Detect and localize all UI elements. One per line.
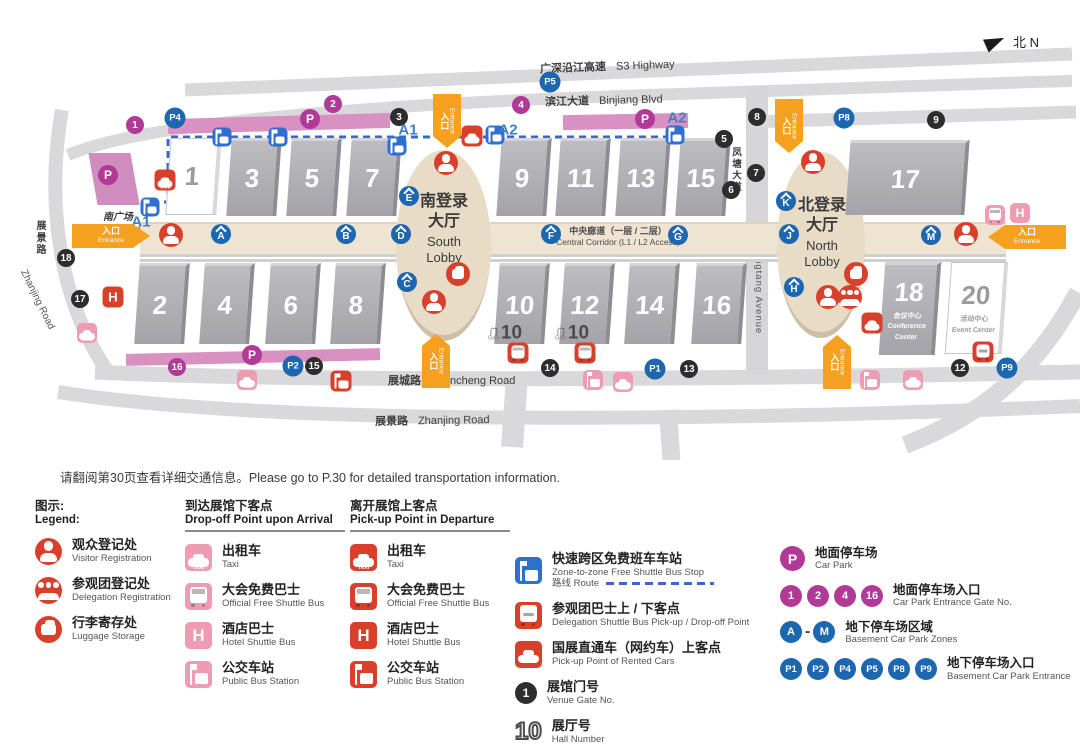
hall-13: 13 (615, 138, 670, 216)
venue-gate-8: 8 (748, 108, 766, 126)
venue-gate-badge: 1 (515, 682, 537, 704)
zonestop-icon (666, 126, 685, 145)
page: { "compass": {"label": "北 N"}, "roads": … (0, 0, 1080, 747)
legend-item-visitor: 观众登记处Visitor Registration (35, 538, 171, 565)
legend-item-text: 公交车站Public Bus Station (387, 661, 464, 687)
bus-icon (575, 343, 596, 364)
visitor-icon (159, 223, 183, 247)
hall-17: 17 (845, 140, 969, 215)
entrance-label: 入口Entrance (1014, 228, 1040, 245)
legend-panel: 请翻阅第30页查看详细交通信息。Please go to P.30 for de… (0, 460, 1080, 747)
taxi-icon: TAXI (77, 323, 97, 343)
taxi-icon: TAXI (185, 544, 212, 571)
visitor-icon (801, 150, 825, 174)
hall-number: 3 (244, 163, 261, 194)
basement-entrance-P9: P9 (997, 358, 1018, 379)
basement-zone-J: J (779, 224, 799, 244)
south-stub-road (512, 378, 517, 447)
bus-icon (985, 205, 1005, 225)
hall-number: 11 (566, 163, 596, 194)
zhanjing-road-bottom (58, 392, 1080, 418)
car-park-gate-16: 16 (168, 358, 186, 376)
visitor-icon (954, 222, 978, 246)
station-icon (331, 371, 352, 392)
car-park-gates-badge-4: 4 (834, 585, 856, 607)
visitor-icon (159, 223, 183, 247)
zhancheng-road-label: 展城路Zhancheng Road (388, 372, 515, 388)
hall-number: 20 (960, 280, 991, 311)
hall-3: 3 (226, 138, 281, 216)
visitor-icon (35, 538, 62, 565)
legend-item-basement-entrances: P1P2P4P5P8P9地下停车场入口Basement Car Park Ent… (780, 656, 1071, 682)
car-icon (862, 313, 883, 334)
dropoff-header: 到达展馆下客点 Drop-off Point upon Arrival (185, 495, 345, 532)
hotel-dropoff-icon: H (1010, 203, 1030, 223)
legend-col-dropoff: 到达展馆下客点 Drop-off Point upon Arrival TAXI… (185, 495, 345, 688)
legend-item-text: 大会免费巴士Official Free Shuttle Bus (222, 583, 324, 609)
corridor-road-lines (140, 254, 1006, 262)
bus-icon (185, 583, 212, 610)
basement-zone-M: M (921, 225, 941, 245)
legend-item-hotel: H酒店巴士Hotel Shuttle Bus (185, 622, 345, 649)
taxi-icon: TAXI (237, 370, 257, 390)
station-dropoff-icon (583, 370, 603, 390)
gate-number: 10 (568, 324, 589, 341)
hall-sub-label: 活动中心Event Center (951, 315, 996, 336)
station-icon (583, 370, 603, 390)
basement-zone-F: F (541, 224, 561, 244)
car-park-p-badge: P (242, 345, 262, 365)
hall-11: 11 (555, 138, 610, 216)
venue-gate-6: 6 (722, 181, 740, 199)
car-icon (515, 641, 542, 668)
car-park-gate-1: 1 (126, 116, 144, 134)
legend-col-titles: 图示: Legend: 观众登记处Visitor Registration参观团… (35, 495, 171, 643)
hall-gate-label: 门Gate10 (555, 324, 589, 341)
hall-number: 12 (569, 290, 600, 321)
entrance-label: 入口Entrance (98, 227, 124, 244)
basement-entrance-P1: P1 (645, 359, 666, 380)
zonestop-icon (388, 137, 407, 156)
south-lobby-label: 南登录大厅 SouthLobby (408, 192, 480, 265)
delegation-icon (838, 285, 862, 309)
hall-number: 14 (634, 290, 665, 321)
legend-item-basement-zones: A-M地下停车场区域Basement Car Park Zones (780, 620, 1071, 646)
car-park-badge-P: P (780, 546, 805, 571)
basement-entrance-P2: P2 (283, 356, 304, 377)
car-park-gates-badge-2: 2 (807, 585, 829, 607)
visitor-icon (434, 151, 458, 175)
taxi-dropoff-icon: TAXI (613, 372, 633, 392)
legend-item-delegation: 参观团登记处Delegation Registration (35, 577, 171, 604)
station-icon (350, 661, 377, 688)
shuttle-stop-name-A2: A2 (667, 110, 686, 127)
hall-2: 2 (134, 263, 190, 344)
route-dash-sample (606, 582, 714, 585)
luggage-icon (35, 616, 62, 643)
basement-zone-K: K (776, 191, 796, 211)
transport-info-note: 请翻阅第30页查看详细交通信息。Please go to P.30 for de… (60, 467, 560, 486)
hall-sub-label: 会议中心Conference Center (880, 312, 934, 344)
visitor-icon (422, 290, 446, 314)
basement-entrances-badge-P5: P5 (861, 658, 883, 680)
hall-number: 5 (304, 163, 321, 194)
hall-20: 20活动中心Event Center (945, 262, 1008, 354)
shuttle-stop-name-A1: A1 (398, 122, 417, 139)
hall-number: 13 (625, 163, 656, 194)
south-stub-road-2 (668, 410, 672, 460)
legend-item-text: 酒店巴士Hotel Shuttle Bus (222, 622, 295, 648)
visitor-icon (801, 150, 825, 174)
hall-15: 15 (675, 138, 730, 216)
legend-item-text: 行李寄存处Luggage Storage (72, 616, 145, 642)
legend-item-delegation_bus: 参观团巴士上 / 下客点Delegation Shuttle Bus Pick-… (515, 602, 749, 629)
legend-item-taxi: TAXI出租车Taxi (185, 544, 345, 571)
legend-item-text: 国展直通车（网约车）上客点Pick-up Point of Rented Car… (552, 641, 721, 667)
basement-zone-E: E (399, 186, 419, 206)
taxi-icon: TAXI (903, 370, 923, 390)
legend-item-text: 参观团登记处Delegation Registration (72, 577, 171, 603)
hall-number: 4 (217, 290, 234, 321)
delegation_bus-icon (973, 342, 994, 363)
venue-gate-13: 13 (680, 360, 698, 378)
hall-number: 16 (701, 290, 732, 321)
zonestop-icon (213, 128, 232, 147)
hall-6: 6 (265, 263, 321, 344)
basement-entrances-badge-P1: P1 (780, 658, 802, 680)
hall-number: 18 (894, 277, 925, 308)
station-dropoff-icon (860, 370, 880, 390)
visitor-icon (422, 290, 446, 314)
venue-gate-7: 7 (747, 164, 765, 182)
basement-entrances-badge-P2: P2 (807, 658, 829, 680)
basement-entrances-badge-P4: P4 (834, 658, 856, 680)
legend-item-zonestop: 快速跨区免费班车车站Zone-to-zone Free Shuttle Bus … (515, 552, 749, 590)
visitor-icon (954, 222, 978, 246)
legend-item-text: 大会免费巴士Official Free Shuttle Bus (387, 583, 489, 609)
basement-zone-A: A (211, 224, 231, 244)
hotel-icon: H (1010, 203, 1030, 223)
legend-item-bus: 大会免费巴士Official Free Shuttle Bus (185, 583, 345, 610)
hall-number: 6 (283, 290, 300, 321)
zone-shuttle-stop-icon (666, 126, 685, 145)
basement-entrance-P4: P4 (165, 108, 186, 129)
legend-item-car: 国展直通车（网约车）上客点Pick-up Point of Rented Car… (515, 641, 749, 668)
hall-gate-label: 门Gate10 (488, 324, 522, 341)
car-icon (462, 126, 483, 147)
car-park-p-badge: P (300, 109, 320, 129)
hall-number: 17 (890, 164, 921, 195)
legend-item-hall-number: 10展厅号Hall Number (515, 718, 749, 746)
legend-item-station: 公交车站Public Bus Station (350, 661, 510, 688)
legend-item-station: 公交车站Public Bus Station (185, 661, 345, 688)
legend-item-venue-gate: 1展馆门号Venue Gate No. (515, 680, 749, 706)
compass-north: 北 N (985, 32, 1039, 51)
north-arrow-icon (983, 31, 1007, 52)
car-park-gate-2: 2 (324, 95, 342, 113)
pickup-header: 离开展馆上客点 Pick-up Point in Departure (350, 495, 510, 532)
delegation_bus-icon (515, 602, 542, 629)
hall-16: 16 (691, 263, 747, 344)
hall-number-sample: 10 (515, 718, 542, 746)
hall-14: 14 (624, 263, 680, 344)
legend-item-taxi: TAXI出租车Taxi (350, 544, 510, 571)
venue-gate-15: 15 (305, 357, 323, 375)
luggage-icon (844, 262, 868, 286)
luggage-icon (446, 262, 470, 286)
car-park-gates-badge-16: 16 (861, 585, 883, 607)
car-park-gates-badge-1: 1 (780, 585, 802, 607)
zone-shuttle-stop-icon (213, 128, 232, 147)
basement-zone-D: D (391, 224, 411, 244)
legend-item-text: 参观团巴士上 / 下客点Delegation Shuttle Bus Pick-… (552, 602, 749, 628)
legend-item-luggage: 行李寄存处Luggage Storage (35, 616, 171, 643)
visitor-icon (816, 285, 840, 309)
route-line-label: 路线 Route (552, 578, 714, 589)
car-icon (862, 313, 883, 334)
gate-number: 10 (501, 324, 522, 341)
zhanjing-road-label-bottom: 展景路Zhanjing Road (375, 411, 490, 429)
car-park-gate-4: 4 (512, 96, 530, 114)
legend-title: 图示: Legend: (35, 495, 171, 526)
bus-icon (508, 343, 529, 364)
zonestop-icon (515, 557, 542, 584)
zhanjing-road-label-left-zh: 展景路 (32, 220, 47, 256)
basement-entrances-badge-P8: P8 (888, 658, 910, 680)
venue-gate-18: 18 (57, 249, 75, 267)
venue-gate-5: 5 (715, 130, 733, 148)
legend-item-text: 出租车Taxi (222, 544, 261, 570)
bus-icon (508, 343, 529, 364)
legend-item-text: 酒店巴士Hotel Shuttle Bus (387, 622, 460, 648)
station-icon (860, 370, 880, 390)
legend-item-car-park-gates: 12416地面停车场入口Car Park Entrance Gate No. (780, 583, 1071, 609)
hall-number: 9 (514, 163, 531, 194)
hall-number: 1 (184, 161, 201, 192)
hall-number: 7 (364, 163, 381, 194)
bus-dropoff-icon (985, 205, 1005, 225)
basement-entrance-P8: P8 (834, 108, 855, 129)
taxi-icon: TAXI (613, 372, 633, 392)
hall-5: 5 (286, 138, 341, 216)
taxi-icon: TAXI (155, 170, 176, 191)
luggage-icon (844, 262, 868, 286)
hall-number: 15 (685, 163, 716, 194)
visitor-icon (434, 151, 458, 175)
hotel-icon: H (103, 287, 124, 308)
hotel-icon: H (185, 622, 212, 649)
delegation_bus-icon (973, 342, 994, 363)
legend-col-pickup: 离开展馆上客点 Pick-up Point in Departure TAXI出… (350, 495, 510, 688)
hotel-icon: H (350, 622, 377, 649)
car-park-p-badge: P (98, 165, 118, 185)
hotel-icon: H (103, 287, 124, 308)
gate-prefix: 门Gate (555, 328, 567, 342)
hall-number: 8 (348, 290, 365, 321)
zone-caret (783, 225, 794, 236)
station-icon (331, 371, 352, 392)
legend-item-text: 快速跨区免费班车车站Zone-to-zone Free Shuttle Bus … (552, 552, 714, 590)
basement-zone-B: B (336, 224, 356, 244)
legend-item-text: 公交车站Public Bus Station (222, 661, 299, 687)
legend-item-car-park: P地面停车场Car Park (780, 546, 1071, 572)
hall-8: 8 (330, 263, 386, 344)
basement-entrance-P5: P5 (540, 72, 561, 93)
legend-col-parking: P地面停车场Car Park12416地面停车场入口Car Park Entra… (780, 535, 1071, 682)
visitor-icon (816, 285, 840, 309)
legend-col-services: 快速跨区免费班车车站Zone-to-zone Free Shuttle Bus … (515, 540, 749, 746)
delegation-icon (838, 285, 862, 309)
binjiang-blvd-label: 滨江大道Binjiang Blvd (545, 90, 663, 109)
basement-entrances-badge-P9: P9 (915, 658, 937, 680)
hall-4: 4 (199, 263, 255, 344)
legend-item-text: 观众登记处Visitor Registration (72, 538, 152, 564)
basement-zones-badge-A: A (780, 621, 802, 643)
taxi-icon: TAXI (350, 544, 377, 571)
car-icon (462, 126, 483, 147)
venue-gate-9: 9 (927, 111, 945, 129)
basement-zones-badge-M: M (813, 621, 835, 643)
legend-item-hotel: H酒店巴士Hotel Shuttle Bus (350, 622, 510, 649)
venue-gate-12: 12 (951, 359, 969, 377)
venue-map: 广深沿江高速S3 Highway 滨江大道Binjiang Blvd 凤塘大道 … (0, 0, 1080, 460)
car-park-p-badge: P (635, 109, 655, 129)
venue-gate-14: 14 (541, 359, 559, 377)
zonestop-icon (269, 128, 288, 147)
taxi-dropoff-icon: TAXI (237, 370, 257, 390)
hall-number: 2 (152, 290, 169, 321)
hall-18: 18会议中心Conference Center (879, 262, 942, 355)
delegation-icon (35, 577, 62, 604)
shuttle-stop-name-A2: A2 (498, 122, 517, 139)
basement-zone-G: G (668, 225, 688, 245)
hall-9: 9 (496, 138, 551, 216)
hall-number: 10 (504, 290, 535, 321)
legend-item-bus: 大会免费巴士Official Free Shuttle Bus (350, 583, 510, 610)
taxi-dropoff-icon: TAXI (77, 323, 97, 343)
venue-gate-17: 17 (71, 290, 89, 308)
station-icon (185, 661, 212, 688)
legend-item-text: 出租车Taxi (387, 544, 426, 570)
taxi-dropoff-icon: TAXI (903, 370, 923, 390)
taxi-icon: TAXI (155, 170, 176, 191)
basement-zone-C: C (397, 272, 417, 292)
bus-icon (350, 583, 377, 610)
zone-shuttle-stop-icon (388, 137, 407, 156)
gate-prefix: 门Gate (488, 328, 500, 342)
basement-zone-H: H (784, 277, 804, 297)
zone-shuttle-stop-icon (269, 128, 288, 147)
luggage-icon (446, 262, 470, 286)
bus-icon (575, 343, 596, 364)
